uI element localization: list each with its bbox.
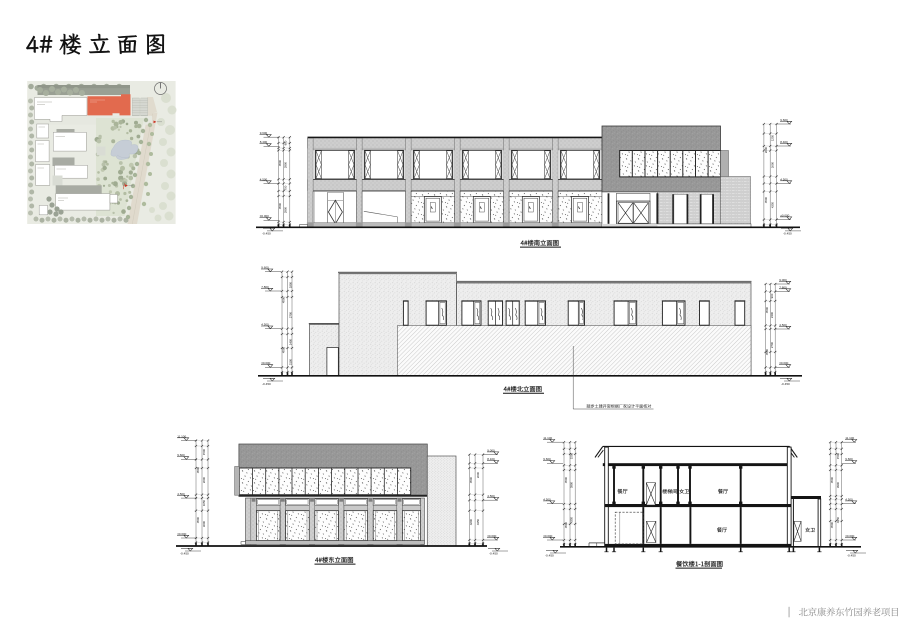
svg-text:1500: 1500 — [836, 452, 840, 459]
svg-text:2400: 2400 — [770, 311, 774, 318]
svg-text:-0.450: -0.450 — [783, 232, 792, 236]
svg-text:4500: 4500 — [282, 296, 286, 303]
svg-text:2900: 2900 — [284, 206, 288, 213]
svg-text:900: 900 — [284, 140, 288, 145]
svg-text:4350: 4350 — [570, 516, 574, 523]
svg-text:4500: 4500 — [764, 196, 768, 203]
svg-text:2700: 2700 — [770, 341, 774, 348]
svg-text:1500: 1500 — [570, 452, 574, 459]
svg-text:4500: 4500 — [278, 202, 282, 209]
svg-text:4500: 4500 — [196, 516, 200, 523]
svg-text:3100: 3100 — [289, 358, 293, 365]
svg-text:4500: 4500 — [282, 346, 286, 353]
svg-text:1250: 1250 — [770, 134, 774, 141]
svg-text:2600: 2600 — [764, 146, 768, 153]
svg-text:4500: 4500 — [469, 476, 473, 483]
svg-text:3900: 3900 — [570, 481, 574, 488]
svg-text:3600: 3600 — [202, 520, 206, 527]
svg-text:750: 750 — [284, 185, 288, 190]
svg-text:2600: 2600 — [202, 476, 206, 483]
svg-text:4350: 4350 — [836, 516, 840, 523]
svg-text:-0.450: -0.450 — [545, 554, 554, 558]
svg-text:1050: 1050 — [202, 499, 206, 506]
svg-text:4500: 4500 — [830, 476, 834, 483]
svg-text:4500: 4500 — [765, 348, 769, 355]
svg-text:4200: 4200 — [469, 518, 473, 525]
svg-text:2600: 2600 — [476, 471, 480, 478]
svg-text:1800: 1800 — [289, 281, 293, 288]
svg-text:-0.450: -0.450 — [180, 552, 189, 556]
svg-text:1500: 1500 — [202, 448, 206, 455]
svg-text:4350: 4350 — [476, 518, 480, 525]
svg-text:4500: 4500 — [278, 159, 282, 166]
svg-text:4500: 4500 — [196, 466, 200, 473]
svg-text:-0.450: -0.450 — [847, 554, 856, 558]
svg-text:4350: 4350 — [770, 201, 774, 208]
svg-text:1400: 1400 — [289, 338, 293, 345]
svg-text:2600: 2600 — [770, 161, 774, 168]
svg-text:4500: 4500 — [564, 521, 568, 528]
svg-text:2700: 2700 — [289, 311, 293, 318]
svg-text:-0.450: -0.450 — [489, 552, 498, 556]
svg-text:-0.450: -0.450 — [262, 382, 271, 386]
svg-text:2900: 2900 — [284, 161, 288, 168]
svg-text:3900: 3900 — [836, 481, 840, 488]
svg-text:4500: 4500 — [830, 521, 834, 528]
svg-text:4500: 4500 — [765, 306, 769, 313]
svg-text:4500: 4500 — [564, 476, 568, 483]
svg-text:-0.450: -0.450 — [781, 382, 790, 386]
svg-text:900: 900 — [770, 293, 774, 298]
svg-text:-0.450: -0.450 — [262, 232, 271, 236]
